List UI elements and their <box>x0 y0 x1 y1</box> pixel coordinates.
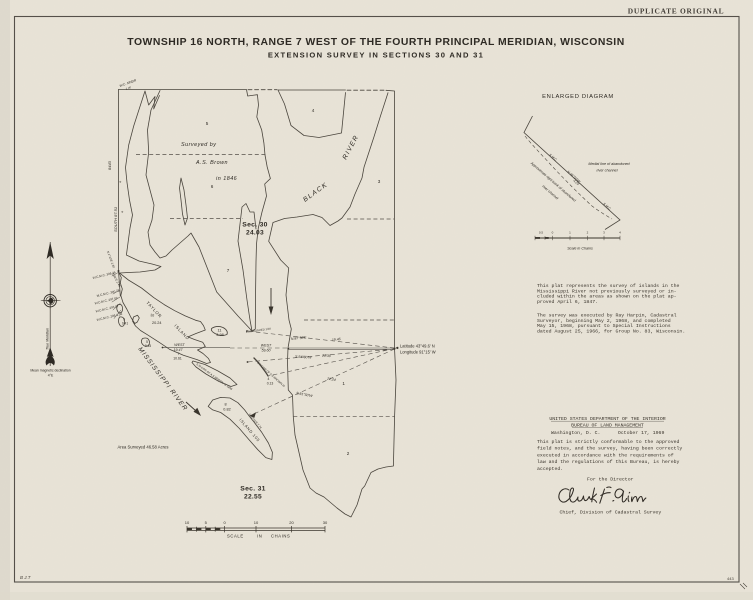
svg-text:✳: ✳ <box>121 210 124 214</box>
svg-text:Surveyed by: Surveyed by <box>181 142 216 148</box>
svg-text:24.03: 24.03 <box>246 230 264 237</box>
svg-text:True Meridian: True Meridian <box>46 328 50 350</box>
svg-text:CHAINS: CHAINS <box>271 534 290 539</box>
svg-text:1: 1 <box>342 381 345 386</box>
svg-text:Sec. 31: Sec. 31 <box>240 486 266 493</box>
svg-text:8443: 8443 <box>107 160 112 170</box>
svg-text:3: 3 <box>378 179 381 184</box>
svg-text:IN: IN <box>257 534 262 539</box>
svg-text:10.61: 10.61 <box>173 357 182 361</box>
svg-text:10: 10 <box>150 313 155 318</box>
svg-text:SOUTH 87.51: SOUTH 87.51 <box>113 207 118 232</box>
svg-text:0.13: 0.13 <box>267 382 274 386</box>
svg-text:22.55: 22.55 <box>244 494 262 501</box>
svg-text:4: 4 <box>312 108 315 113</box>
svg-text:proved April 6, 1847.: proved April 6, 1847. <box>537 299 598 305</box>
svg-text:The survey was executed by Ray: The survey was executed by Ray Harpin, C… <box>537 313 677 319</box>
svg-text:For the Director: For the Director <box>587 477 634 483</box>
svg-text:0.5: 0.5 <box>539 231 544 235</box>
svg-text:443: 443 <box>727 576 734 581</box>
svg-text:4°E: 4°E <box>48 374 54 378</box>
svg-text:TOWNSHIP 16 NORTH, RANGE 7 WES: TOWNSHIP 16 NORTH, RANGE 7 WEST OF THE F… <box>127 37 624 48</box>
svg-text:8: 8 <box>224 403 226 407</box>
svg-text:Latitude 43°49.6′ N: Latitude 43°49.6′ N <box>400 344 435 349</box>
svg-text:5: 5 <box>206 121 209 126</box>
svg-text:30: 30 <box>323 520 328 525</box>
svg-text:WEST: WEST <box>174 343 185 347</box>
svg-text:law and the regulations of th: law and the regulations of this Bureau, … <box>537 459 680 465</box>
svg-text:0.41: 0.41 <box>122 322 128 326</box>
svg-text:6: 6 <box>211 184 214 189</box>
svg-text:May 15, 1968, pursuant to Spec: May 15, 1968, pursuant to Special Instru… <box>537 323 671 329</box>
svg-text:ENLARGED DIAGRAM: ENLARGED DIAGRAM <box>542 94 614 100</box>
svg-text:Washington, D. C. October: Washington, D. C. October 17, 1969 <box>551 430 664 436</box>
svg-text:Scale in Chains: Scale in Chains <box>567 247 593 251</box>
svg-text:4: 4 <box>268 377 270 381</box>
svg-text:3.98: 3.98 <box>216 333 223 337</box>
svg-text:Longitude 91°15′ W: Longitude 91°15′ W <box>400 350 436 355</box>
svg-text:WEST: WEST <box>261 344 272 348</box>
svg-text:river channel: river channel <box>596 169 617 173</box>
svg-text:20: 20 <box>289 520 294 525</box>
svg-text:20.24: 20.24 <box>152 321 162 325</box>
svg-text:accepted.: accepted. <box>537 466 563 472</box>
svg-text:Chief, Division of Cadastral S: Chief, Division of Cadastral Survey <box>560 510 662 516</box>
svg-text:This plat is strictly conforma: This plat is strictly conformable to the… <box>537 439 680 445</box>
svg-text:0.82: 0.82 <box>223 408 230 412</box>
svg-text:Area Surveyed 46.58 Acres: Area Surveyed 46.58 Acres <box>118 445 169 450</box>
svg-text:2: 2 <box>347 451 350 456</box>
svg-text:Mississippi River not previous: Mississippi River not previously surveye… <box>537 288 677 294</box>
svg-text:cluded within the areas as sho: cluded within the areas as shown on the … <box>537 294 677 300</box>
svg-text:in 1846: in 1846 <box>216 176 237 182</box>
svg-text:EXTENSION SURVEY IN SECTIONS 3: EXTENSION SURVEY IN SECTIONS 30 AND 31 <box>268 51 484 60</box>
svg-text:SCALE: SCALE <box>227 534 244 539</box>
svg-text:Sec. 30: Sec. 30 <box>242 222 268 229</box>
svg-text:10: 10 <box>185 520 190 525</box>
svg-text:0.45: 0.45 <box>145 344 151 348</box>
svg-text:59.60: 59.60 <box>262 349 271 353</box>
svg-text:executed in accordance with th: executed in accordance with the requirem… <box>537 452 674 458</box>
svg-text:Mean magnetic declination: Mean magnetic declination <box>30 369 70 373</box>
svg-text:✳: ✳ <box>119 180 122 184</box>
svg-text:Surveyor, beginning May 2, 196: Surveyor, beginning May 2, 1968, and com… <box>537 318 671 324</box>
svg-text:A.S. Brown: A.S. Brown <box>195 160 228 166</box>
svg-text:11: 11 <box>218 329 222 333</box>
svg-text:Medial line of abandoned: Medial line of abandoned <box>588 162 630 166</box>
svg-text:B J.T: B J.T <box>20 575 32 580</box>
svg-text:This plat represents the surve: This plat represents the survey of islan… <box>537 283 680 289</box>
svg-text:field notes, and the survey, h: field notes, and the survey, having been… <box>537 446 682 452</box>
svg-text:21.38: 21.38 <box>321 353 331 358</box>
svg-text:DUPLICATE ORIGINAL: DUPLICATE ORIGINAL <box>628 7 725 16</box>
svg-text:7: 7 <box>227 268 230 273</box>
svg-text:10: 10 <box>254 520 259 525</box>
svg-text:dated August 25, 1966, for Gro: dated August 25, 1966, for Group No. 83,… <box>537 328 685 334</box>
svg-text:7: 7 <box>178 352 180 356</box>
